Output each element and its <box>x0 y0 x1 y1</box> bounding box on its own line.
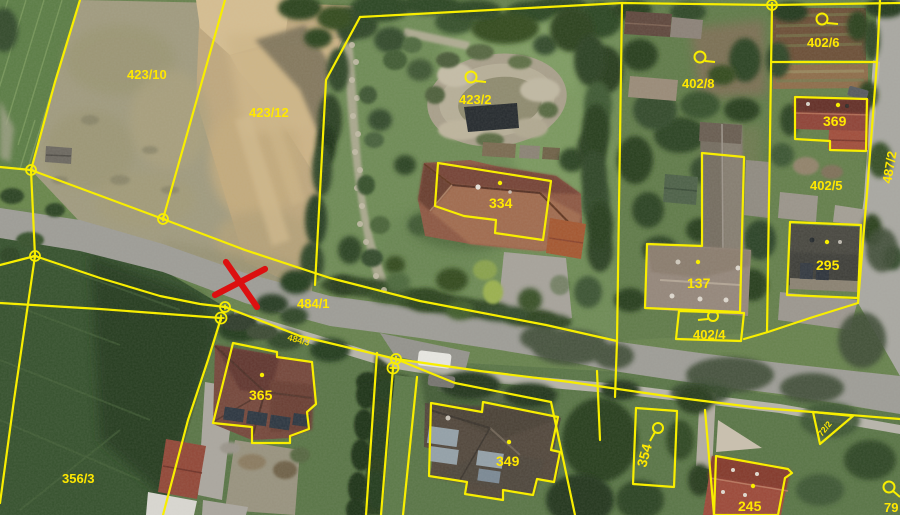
svg-text:356/3: 356/3 <box>62 471 95 486</box>
svg-text:402/5: 402/5 <box>810 178 843 193</box>
svg-text:402/6: 402/6 <box>807 35 840 50</box>
svg-text:423/10: 423/10 <box>127 67 167 82</box>
svg-text:484/1: 484/1 <box>297 296 330 311</box>
svg-text:79: 79 <box>884 500 898 515</box>
svg-text:245: 245 <box>738 498 762 514</box>
svg-text:402/4: 402/4 <box>693 327 726 342</box>
svg-text:295: 295 <box>816 257 840 273</box>
svg-text:334: 334 <box>489 195 513 211</box>
svg-text:423/2: 423/2 <box>459 92 492 107</box>
svg-text:402/8: 402/8 <box>682 76 715 91</box>
svg-text:423/12: 423/12 <box>249 105 289 120</box>
svg-text:369: 369 <box>823 113 847 129</box>
svg-text:349: 349 <box>496 453 520 469</box>
svg-text:137: 137 <box>687 275 711 291</box>
svg-text:365: 365 <box>249 387 273 403</box>
